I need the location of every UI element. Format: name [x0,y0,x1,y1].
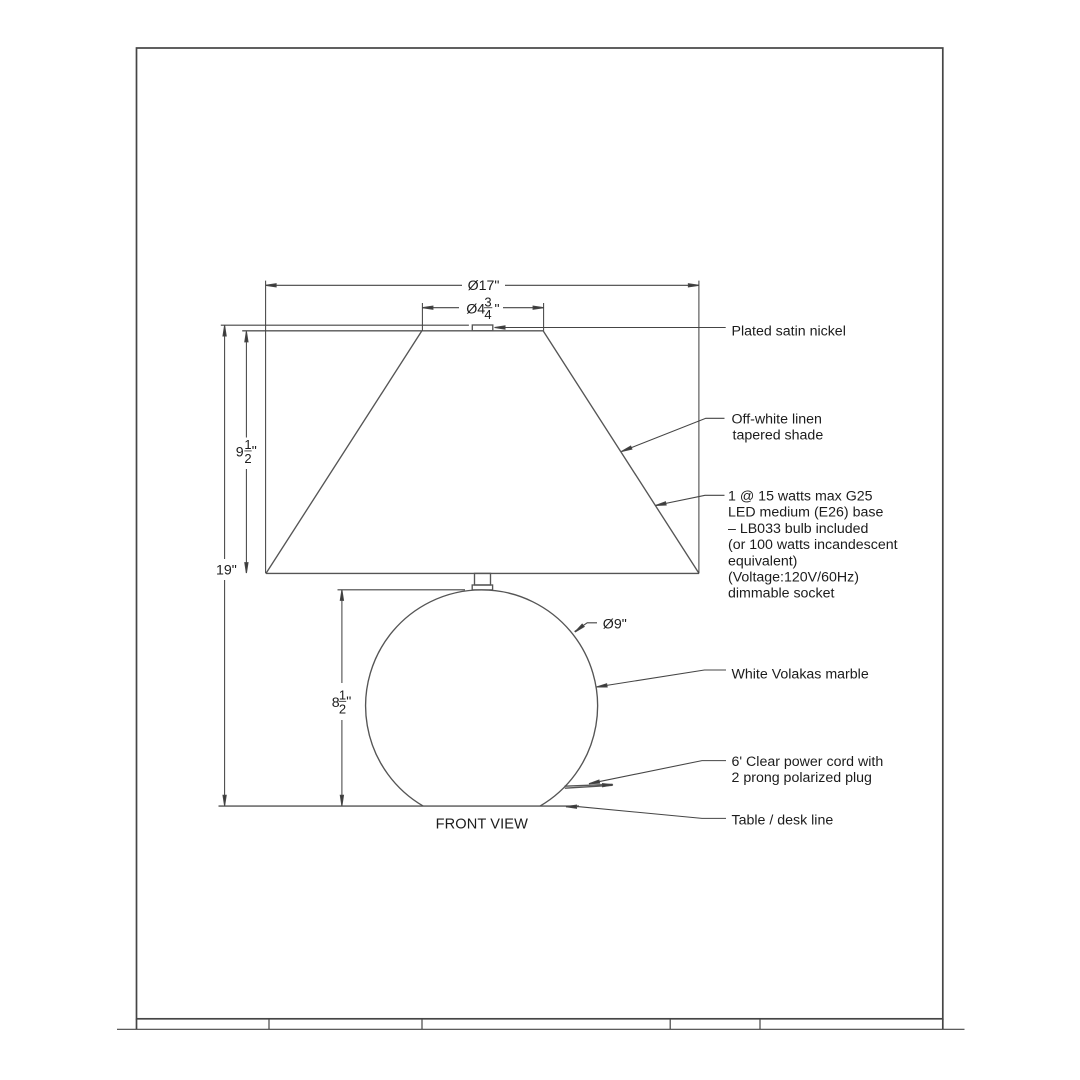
svg-text:Ø4: Ø4 [466,302,485,318]
svg-text:(Voltage:120V/60Hz): (Voltage:120V/60Hz) [728,570,859,586]
svg-text:Table / desk line: Table / desk line [732,813,834,829]
svg-text:": " [346,694,351,710]
svg-text:Ø17": Ø17" [468,278,500,294]
svg-text:9: 9 [236,445,244,461]
svg-text:Plated satin nickel: Plated satin nickel [732,324,846,340]
svg-text:tapered shade: tapered shade [733,428,824,444]
svg-text:1 @ 15 watts max G25: 1 @ 15 watts max G25 [728,489,873,505]
svg-text:2: 2 [339,702,346,717]
svg-text:1: 1 [244,437,251,452]
svg-text:FRONT VIEW: FRONT VIEW [436,816,528,832]
svg-text:4: 4 [484,307,491,322]
svg-text:LED medium (E26) base: LED medium (E26) base [728,505,883,521]
svg-text:– LB033 bulb included: – LB033 bulb included [728,521,868,537]
svg-text:Ø9": Ø9" [603,616,627,632]
svg-text:19": 19" [216,563,237,579]
svg-text:Off-white linen: Off-white linen [732,411,822,427]
svg-text:White Volakas marble: White Volakas marble [732,667,869,683]
svg-text:6' Clear power cord with: 6' Clear power cord with [732,754,884,770]
svg-text:": " [252,444,257,460]
svg-text:2: 2 [244,451,251,466]
svg-text:": " [495,302,500,318]
svg-text:2 prong polarized plug: 2 prong polarized plug [732,770,872,786]
svg-text:dimmable socket: dimmable socket [728,586,835,602]
svg-text:(or 100 watts incandescent: (or 100 watts incandescent [728,537,898,553]
svg-text:equivalent): equivalent) [728,553,797,569]
svg-text:1: 1 [339,687,346,702]
